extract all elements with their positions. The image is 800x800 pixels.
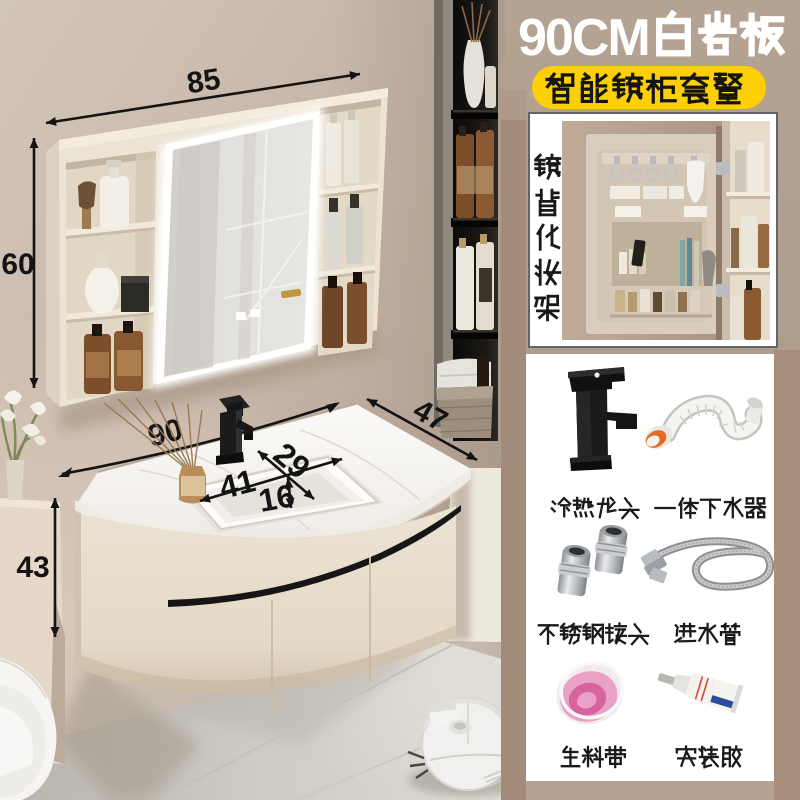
svg-text:43: 43 — [16, 551, 49, 584]
svg-text:90CM: 90CM — [518, 9, 649, 67]
svg-text:60: 60 — [1, 248, 34, 281]
svg-text:16: 16 — [256, 477, 297, 519]
svg-text:85: 85 — [185, 63, 223, 101]
